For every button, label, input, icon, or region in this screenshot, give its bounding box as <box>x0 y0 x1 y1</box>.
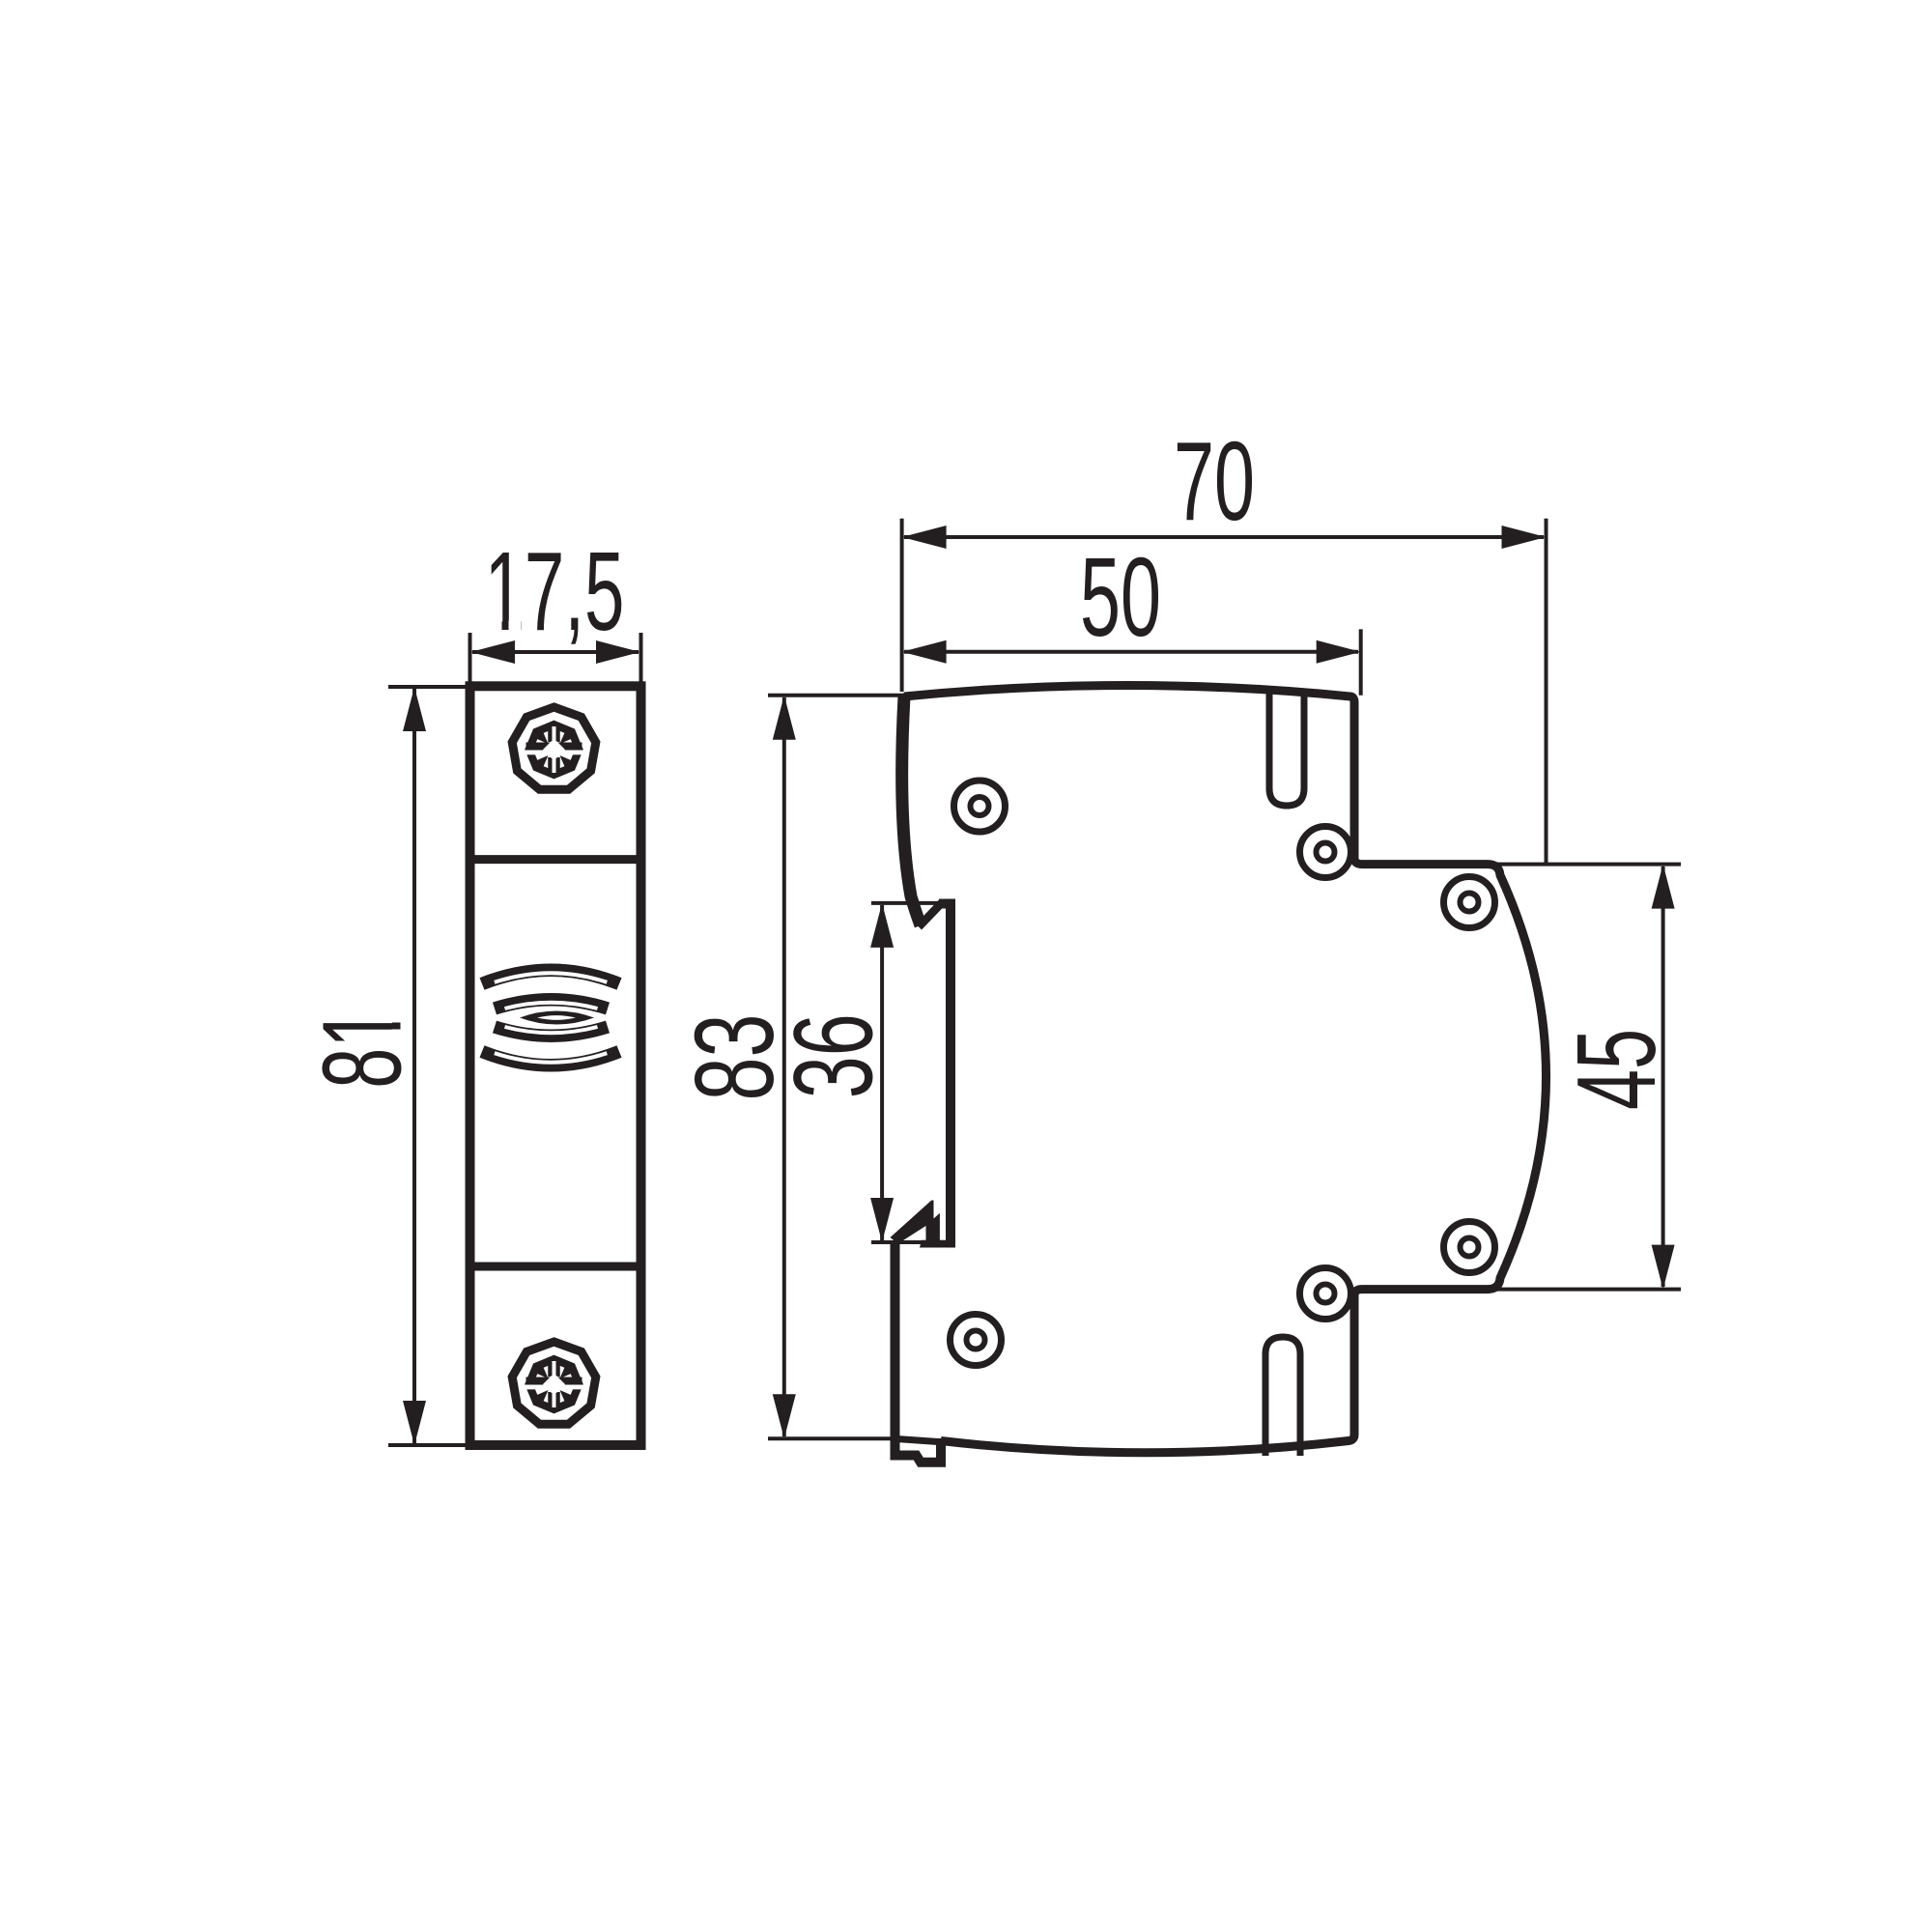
svg-text:81: 81 <box>299 1008 425 1089</box>
svg-text:70: 70 <box>1174 418 1255 544</box>
svg-text:45: 45 <box>1553 1029 1679 1110</box>
svg-text:17,5: 17,5 <box>485 528 625 654</box>
svg-text:36: 36 <box>771 1013 896 1098</box>
svg-text:50: 50 <box>1080 534 1161 660</box>
